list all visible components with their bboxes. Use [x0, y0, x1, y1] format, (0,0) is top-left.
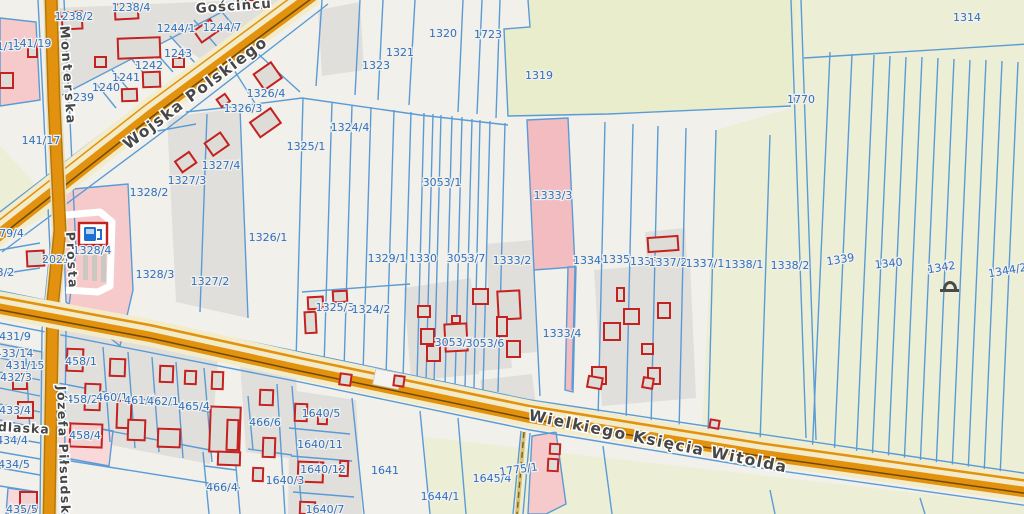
parcel-label: 1325/1 — [287, 140, 326, 153]
parcel-label: 1319 — [525, 69, 553, 82]
parcel-label: 435/5 — [6, 503, 38, 514]
parcel-label: 458/4 — [69, 429, 101, 442]
parcel-label: 1333/3 — [534, 189, 573, 202]
parcel-label: 1333/4 — [543, 327, 582, 340]
parcel-label: 1326/3 — [224, 102, 263, 115]
parcel-label: 1327/2 — [191, 275, 230, 288]
parcel-label: 1238/2 — [55, 10, 94, 23]
parcel-label: 1324/2 — [352, 303, 391, 316]
parcel-label: 466/6 — [249, 416, 281, 429]
street-label-prosta: Prosta — [63, 231, 81, 289]
parcel-label: 1327/3 — [168, 174, 207, 187]
parcel-label: 433/4 — [0, 404, 31, 417]
cadastral-map[interactable]: 1238/2 1238/4 1244/1 1244/7 1243 1242 12… — [0, 0, 1024, 514]
parcel-label: 1325/3 — [316, 301, 355, 314]
parcel-label: 434/5 — [0, 458, 30, 471]
parcel-label: 458/1 — [65, 355, 97, 368]
parcel-label: 1238/4 — [112, 1, 151, 14]
parcel-label: 1337/2 — [649, 256, 688, 269]
parcel-label: 1333/2 — [493, 254, 532, 267]
parcel-label: 1314 — [953, 11, 981, 24]
parcel-label: 1320 — [429, 27, 457, 40]
parcel-label: 1337/1 — [686, 257, 725, 270]
parcel-label: 1334 — [573, 254, 601, 267]
parcel-label: 1641 — [371, 464, 399, 477]
parcel-label: 1770 — [787, 93, 815, 106]
parcel-label: 1328/3 — [136, 268, 175, 281]
parcel-label: 1640/7 — [306, 503, 345, 514]
parcel-label: 460/1 — [96, 391, 128, 404]
parcel-label: 3053/6 — [466, 337, 505, 350]
parcel-label: 1644/1 — [421, 490, 460, 503]
parcel-label: 1321 — [386, 46, 414, 59]
parcel-label: 1640/11 — [297, 438, 343, 451]
parcel-label: 1338/1 — [725, 258, 764, 271]
parcel-label: 462/1 — [147, 395, 179, 408]
parcel-label: 1244/1 — [157, 22, 196, 35]
parcel-label: 3053/1 — [423, 176, 462, 189]
fuel-pump-icon — [79, 223, 107, 245]
parcel-label: 431/9 — [0, 330, 31, 343]
parcel-label: 465/4 — [178, 400, 210, 413]
parcel-label: 1323 — [362, 59, 390, 72]
parcel-label: 1640/12 — [300, 463, 346, 476]
parcel-label: 1244/7 — [203, 21, 242, 34]
parcel-label: 1326/1 — [249, 231, 288, 244]
parcel-label: 1329/1 — [368, 252, 407, 265]
parcel-label: 1243 — [164, 47, 192, 60]
parcel-label: 466/4 — [206, 481, 238, 494]
parcel-label: 1640/5 — [302, 407, 341, 420]
parcel-label: 434/4 — [0, 434, 28, 447]
parcel-label: 432/3 — [0, 371, 32, 384]
parcel-label: 1723 — [474, 28, 502, 41]
parcel-label: 1326/4 — [247, 87, 286, 100]
parcel-label: 1338/2 — [771, 259, 810, 272]
parcel-label: 179/4 — [0, 227, 24, 240]
parcel-label: 1327/4 — [202, 159, 241, 172]
parcel-label: 141/17 — [22, 134, 61, 147]
parcel-label: 458/2 — [66, 393, 98, 406]
parcel-label: 73/2 — [0, 266, 14, 279]
map-canvas[interactable]: 1238/2 1238/4 1244/1 1244/7 1243 1242 12… — [0, 0, 1024, 514]
parcel-label: 3053/7 — [447, 252, 486, 265]
parcel-label: 141/19 — [13, 37, 52, 50]
parcel-label: 1324/4 — [331, 121, 370, 134]
street-label-podlaska: Podlaska — [0, 418, 50, 437]
parcel-label: 1330 — [409, 252, 437, 265]
parcel-label: 1640/3 — [266, 474, 305, 487]
parcel-label: 1328/2 — [130, 186, 169, 199]
parcel-label: 1335 — [602, 253, 630, 266]
parcel-label: 1240 — [92, 81, 120, 94]
